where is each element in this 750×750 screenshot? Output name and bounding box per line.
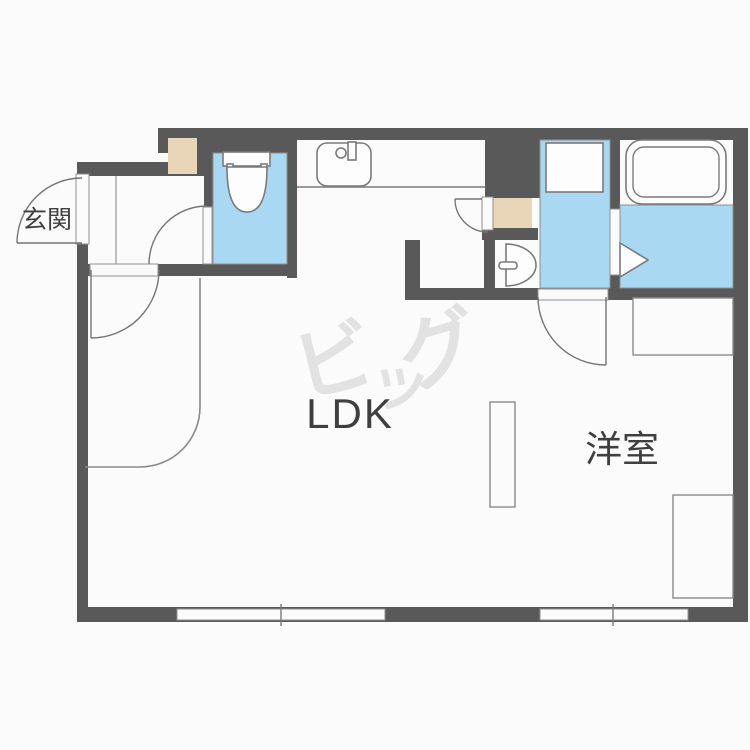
shoe-cabinet bbox=[168, 138, 197, 174]
bathroom-door-opening bbox=[610, 209, 620, 275]
wall-toilet-bottom bbox=[204, 264, 297, 276]
closet-bottom-right bbox=[673, 495, 733, 598]
washbasin-handle bbox=[499, 262, 517, 269]
partition-pillar bbox=[490, 402, 515, 507]
hall-ldk-door-opening bbox=[90, 264, 158, 276]
wall-nook-left bbox=[484, 228, 495, 290]
washing-machine-pan-icon bbox=[546, 143, 603, 192]
floor-plan: ビ ッ グ bbox=[0, 0, 750, 750]
wall-kitchen-right-block bbox=[485, 128, 540, 198]
window-icon bbox=[540, 609, 688, 620]
wall-toilet-right bbox=[287, 128, 297, 278]
wall-right bbox=[733, 128, 748, 622]
storage-cabinet bbox=[493, 198, 532, 228]
wall-left bbox=[77, 243, 88, 622]
entrance-label: 玄関 bbox=[22, 206, 72, 234]
ldk-label: LDK bbox=[306, 390, 394, 437]
entrance-door-opening bbox=[76, 174, 89, 244]
wall-stub bbox=[405, 240, 420, 300]
faucet-icon bbox=[348, 142, 356, 160]
storage-door-leaf bbox=[482, 197, 493, 230]
bathroom-floor bbox=[620, 205, 733, 288]
faucet-icon bbox=[336, 148, 346, 158]
wall-toilet-left bbox=[204, 153, 213, 207]
closet-top-right bbox=[633, 298, 733, 355]
toilet-door-leaf bbox=[203, 207, 212, 264]
bathtub-icon bbox=[626, 140, 726, 204]
western-room-label: 洋室 bbox=[585, 429, 659, 470]
western-room-door-opening bbox=[538, 289, 608, 300]
